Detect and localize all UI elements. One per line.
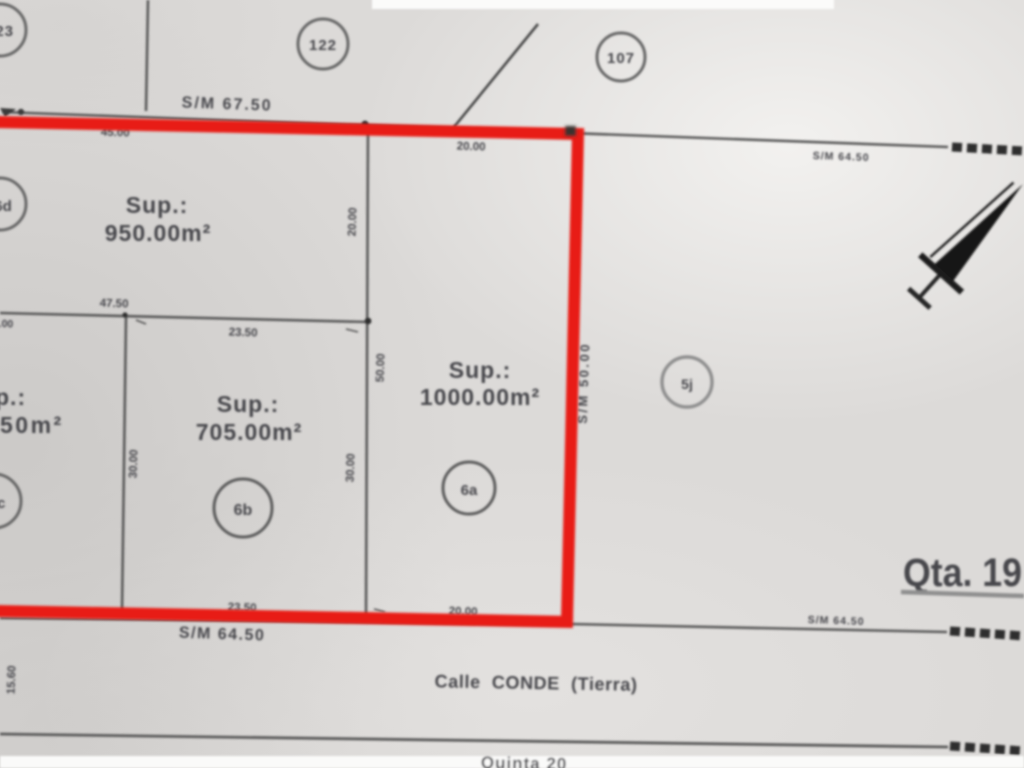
svg-text:950.00m²: 950.00m²: [105, 220, 211, 246]
svg-text:6c: 6c: [0, 495, 5, 512]
svg-text:S/M 64.50: S/M 64.50: [812, 150, 869, 164]
svg-text:20.00: 20.00: [457, 141, 486, 154]
svg-text:S/M 64.50: S/M 64.50: [179, 624, 266, 644]
svg-text:47.50: 47.50: [99, 298, 128, 311]
svg-text:123: 123: [0, 23, 14, 40]
svg-text:Quinta 20: Quinta 20: [481, 753, 568, 768]
svg-text:122: 122: [309, 37, 337, 54]
svg-text:20.00: 20.00: [347, 207, 360, 236]
svg-text:5j: 5j: [681, 376, 693, 392]
svg-text:p.:: p.:: [0, 384, 26, 410]
svg-text:S/M 67.50: S/M 67.50: [181, 94, 272, 114]
svg-text:23.50: 23.50: [228, 327, 257, 340]
svg-text:705.00m²: 705.00m²: [196, 419, 302, 445]
svg-text:50.00: 50.00: [375, 353, 388, 382]
svg-text:1000.00m²: 1000.00m²: [420, 384, 540, 410]
svg-text:30.00: 30.00: [345, 453, 358, 482]
svg-text:S/M 64.50: S/M 64.50: [807, 614, 864, 628]
svg-text:6a: 6a: [461, 482, 478, 499]
svg-text:30.00: 30.00: [128, 449, 141, 478]
svg-text:6b: 6b: [234, 502, 253, 519]
svg-text:Sup.:: Sup.:: [126, 192, 189, 218]
svg-text:15.00: 15.00: [0, 318, 14, 331]
svg-text:Sup.:: Sup.:: [449, 357, 512, 383]
svg-text:Qta. 19: Qta. 19: [903, 551, 1022, 595]
svg-text:Sup.:: Sup.:: [217, 391, 280, 417]
svg-text:107: 107: [607, 50, 635, 67]
svg-text:15.60: 15.60: [6, 665, 19, 694]
svg-text:6d: 6d: [0, 198, 12, 215]
svg-text:Calle CONDE (Tierra): Calle CONDE (Tierra): [434, 671, 637, 695]
svg-text:50m²: 50m²: [0, 412, 64, 438]
